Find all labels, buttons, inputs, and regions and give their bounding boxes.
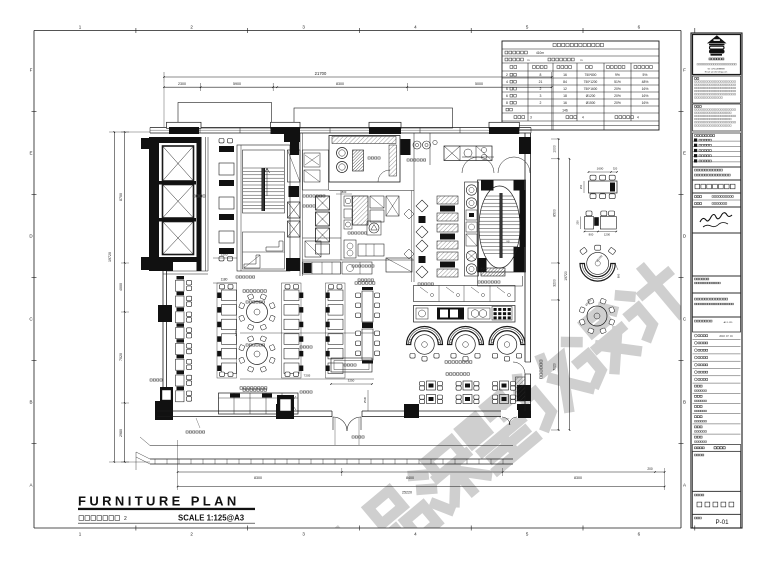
svg-text:B: B — [683, 400, 686, 405]
svg-text:48%: 48% — [642, 80, 649, 84]
svg-text:8300: 8300 — [254, 476, 262, 480]
svg-text:Tel: 0755-8888888: Tel: 0755-8888888 — [707, 69, 725, 71]
svg-text:200: 200 — [647, 467, 653, 471]
svg-text:600: 600 — [617, 273, 621, 278]
svg-text:8300: 8300 — [336, 82, 344, 86]
svg-text:2300: 2300 — [178, 82, 186, 86]
svg-text:4: 4 — [506, 80, 508, 84]
svg-text:18: 18 — [563, 94, 567, 98]
svg-text:A: A — [29, 483, 32, 488]
svg-text:7020: 7020 — [553, 363, 557, 371]
svg-text:4000: 4000 — [119, 283, 123, 291]
svg-text:Ø1500: Ø1500 — [586, 101, 596, 105]
svg-text:20%: 20% — [614, 101, 621, 105]
svg-text:410m: 410m — [536, 51, 544, 55]
svg-text:750*1200: 750*1200 — [584, 80, 598, 84]
svg-text:25220: 25220 — [402, 490, 412, 494]
svg-text:FURNITURE PLAN: FURNITURE PLAN — [78, 494, 240, 509]
svg-text:3250: 3250 — [348, 379, 355, 383]
svg-text:8: 8 — [506, 101, 508, 105]
svg-text:9%: 9% — [615, 73, 620, 77]
svg-text:7205: 7205 — [304, 374, 311, 378]
svg-text:8300: 8300 — [574, 476, 582, 480]
svg-text:A3 1:125: A3 1:125 — [724, 321, 734, 324]
svg-text:1600: 1600 — [597, 167, 604, 171]
svg-text:F: F — [683, 68, 686, 73]
svg-text:Email: pinshen@qq.com: Email: pinshen@qq.com — [705, 72, 728, 74]
svg-text:A: A — [683, 483, 686, 488]
svg-text:1000: 1000 — [553, 145, 557, 153]
svg-text:12: 12 — [563, 87, 567, 91]
svg-text:SCALE 1:125@A3: SCALE 1:125@A3 — [178, 514, 245, 523]
svg-text:7020: 7020 — [119, 353, 123, 361]
svg-text:1500: 1500 — [220, 253, 227, 257]
svg-text:6: 6 — [506, 87, 508, 91]
svg-text:20%: 20% — [614, 94, 621, 98]
svg-text:19720: 19720 — [564, 271, 568, 281]
svg-text:51%: 51% — [614, 80, 621, 84]
svg-text:750*800: 750*800 — [585, 73, 597, 77]
svg-text:5000: 5000 — [475, 82, 483, 86]
svg-text:8500: 8500 — [553, 209, 557, 217]
svg-text:20%: 20% — [614, 87, 621, 91]
svg-text:21700: 21700 — [315, 71, 327, 76]
svg-text:1200: 1200 — [604, 233, 611, 237]
svg-text:2: 2 — [506, 73, 508, 77]
svg-text:3: 3 — [540, 94, 542, 98]
svg-text:3200: 3200 — [553, 279, 557, 287]
svg-text:8: 8 — [540, 73, 542, 77]
svg-text:16%: 16% — [642, 94, 649, 98]
svg-text:84: 84 — [563, 80, 567, 84]
svg-text:6: 6 — [506, 94, 508, 98]
svg-text:320: 320 — [613, 167, 618, 171]
svg-text:B: B — [29, 400, 32, 405]
svg-text:E: E — [683, 151, 686, 156]
svg-text:2: 2 — [124, 516, 127, 522]
svg-text:2980: 2980 — [119, 429, 123, 437]
svg-text:8400: 8400 — [406, 476, 414, 480]
svg-text:8700: 8700 — [119, 193, 123, 201]
svg-text:2: 2 — [540, 101, 542, 105]
svg-text:1300: 1300 — [234, 329, 238, 336]
svg-text:16%: 16% — [642, 87, 649, 91]
svg-text:16: 16 — [563, 73, 567, 77]
svg-text:F: F — [30, 68, 33, 73]
svg-text:750*1600: 750*1600 — [584, 87, 598, 91]
svg-text:16%: 16% — [642, 101, 649, 105]
svg-text:19720: 19720 — [108, 252, 112, 262]
svg-text:800: 800 — [589, 233, 594, 237]
svg-text:3: 3 — [530, 115, 532, 119]
svg-text:146: 146 — [562, 108, 568, 112]
svg-text:4: 4 — [637, 115, 639, 119]
svg-text:250: 250 — [576, 220, 580, 225]
svg-text:P-01: P-01 — [715, 519, 729, 526]
svg-text:E: E — [29, 151, 32, 156]
svg-text:Ø1200: Ø1200 — [586, 94, 596, 98]
svg-text:5%: 5% — [643, 73, 648, 77]
svg-text:2: 2 — [540, 87, 542, 91]
svg-text:250: 250 — [579, 184, 583, 189]
svg-text:21: 21 — [539, 80, 543, 84]
svg-text:16: 16 — [563, 101, 567, 105]
svg-text:5900: 5900 — [233, 82, 241, 86]
svg-text:4: 4 — [582, 115, 584, 119]
svg-text:2018. 07. 04: 2018. 07. 04 — [719, 335, 733, 338]
svg-text:2530: 2530 — [363, 396, 367, 403]
svg-text:1180: 1180 — [221, 278, 228, 282]
